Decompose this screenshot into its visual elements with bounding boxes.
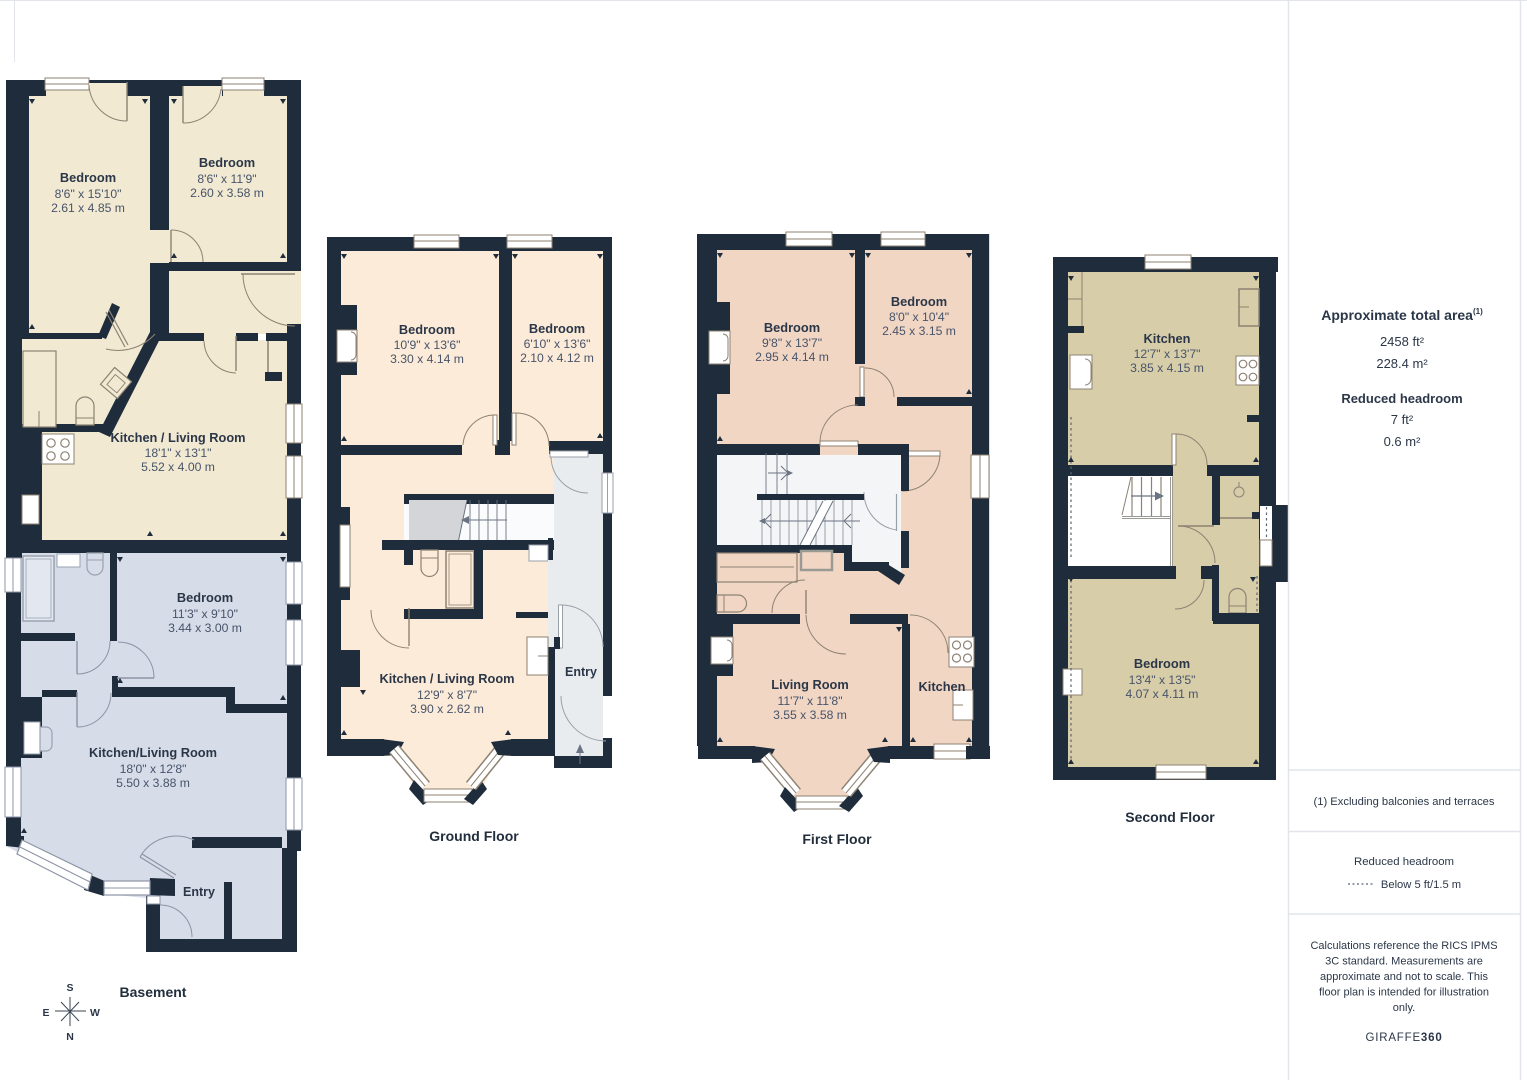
- svg-text:2.61 x 4.85 m: 2.61 x 4.85 m: [51, 201, 125, 215]
- svg-text:8'6" x 15'10": 8'6" x 15'10": [55, 187, 122, 201]
- svg-text:2.10 x 4.12 m: 2.10 x 4.12 m: [520, 351, 594, 365]
- svg-text:7 ft²: 7 ft²: [1391, 412, 1414, 427]
- svg-text:228.4 m²: 228.4 m²: [1376, 356, 1428, 371]
- svg-text:8'6" x 11'9": 8'6" x 11'9": [197, 172, 256, 186]
- svg-text:3.44 x 3.00 m: 3.44 x 3.00 m: [168, 621, 242, 635]
- svg-text:Second Floor: Second Floor: [1125, 809, 1215, 825]
- svg-text:Entry: Entry: [183, 885, 215, 899]
- svg-text:Basement: Basement: [120, 984, 187, 1000]
- svg-text:floor plan is intended for ill: floor plan is intended for illustration: [1319, 987, 1489, 999]
- svg-text:Bedroom: Bedroom: [1134, 656, 1190, 671]
- svg-text:11'3" x 9'10": 11'3" x 9'10": [172, 607, 238, 621]
- svg-text:Below 5 ft/1.5 m: Below 5 ft/1.5 m: [1381, 879, 1461, 891]
- svg-text:Approximate total area(1): Approximate total area(1): [1321, 307, 1483, 323]
- svg-text:Reduced headroom: Reduced headroom: [1354, 856, 1454, 868]
- svg-text:S: S: [66, 982, 73, 994]
- svg-text:Kitchen/Living Room: Kitchen/Living Room: [89, 745, 217, 760]
- svg-text:3.85 x 4.15 m: 3.85 x 4.15 m: [1130, 361, 1204, 375]
- svg-text:3.90 x 2.62 m: 3.90 x 2.62 m: [410, 702, 484, 716]
- svg-text:11'7" x 11'8": 11'7" x 11'8": [777, 694, 842, 708]
- svg-text:0.6 m²: 0.6 m²: [1384, 434, 1422, 449]
- svg-text:Bedroom: Bedroom: [399, 322, 455, 337]
- svg-text:2.95 x 4.14 m: 2.95 x 4.14 m: [755, 350, 829, 364]
- svg-text:3C standard. Measurements are: 3C standard. Measurements are: [1325, 956, 1483, 968]
- svg-text:6'10" x 13'6": 6'10" x 13'6": [524, 337, 591, 351]
- svg-text:E: E: [42, 1007, 49, 1019]
- svg-text:2.60 x 3.58 m: 2.60 x 3.58 m: [190, 186, 264, 200]
- svg-text:2458 ft²: 2458 ft²: [1380, 334, 1425, 349]
- svg-text:Bedroom: Bedroom: [177, 590, 233, 605]
- svg-text:3.55 x 3.58 m: 3.55 x 3.58 m: [773, 708, 847, 722]
- svg-text:Bedroom: Bedroom: [529, 321, 585, 336]
- svg-text:Entry: Entry: [565, 665, 597, 679]
- svg-text:Kitchen: Kitchen: [1144, 331, 1191, 346]
- svg-text:approximate and not to scale.: approximate and not to scale. This: [1320, 971, 1488, 983]
- svg-text:12'7" x 13'7": 12'7" x 13'7": [1134, 347, 1201, 361]
- svg-text:only.: only.: [1393, 1002, 1415, 1014]
- svg-text:GIRAFFE360: GIRAFFE360: [1365, 1032, 1442, 1044]
- svg-text:Bedroom: Bedroom: [199, 155, 255, 170]
- svg-text:5.52 x 4.00 m: 5.52 x 4.00 m: [141, 460, 215, 474]
- svg-text:Kitchen: Kitchen: [919, 679, 966, 694]
- svg-text:Bedroom: Bedroom: [60, 170, 116, 185]
- svg-text:18'1" x 13'1": 18'1" x 13'1": [145, 446, 212, 460]
- svg-text:3.30 x 4.14 m: 3.30 x 4.14 m: [390, 352, 464, 366]
- svg-text:4.07 x 4.11 m: 4.07 x 4.11 m: [1126, 687, 1199, 701]
- svg-text:8'0" x 10'4": 8'0" x 10'4": [889, 310, 949, 324]
- svg-text:N: N: [66, 1031, 74, 1043]
- svg-text:2.45 x 3.15 m: 2.45 x 3.15 m: [882, 324, 956, 338]
- svg-text:Living Room: Living Room: [771, 677, 849, 692]
- svg-text:18'0" x 12'8": 18'0" x 12'8": [120, 762, 187, 776]
- svg-text:First Floor: First Floor: [802, 831, 872, 847]
- svg-text:10'9" x 13'6": 10'9" x 13'6": [394, 338, 461, 352]
- svg-text:(1) Excluding balconies and te: (1) Excluding balconies and terraces: [1314, 796, 1495, 808]
- svg-text:W: W: [90, 1007, 100, 1019]
- svg-text:9'8" x 13'7": 9'8" x 13'7": [762, 336, 822, 350]
- svg-text:5.50 x 3.88 m: 5.50 x 3.88 m: [116, 776, 190, 790]
- svg-text:Calculations reference the RIC: Calculations reference the RICS IPMS: [1310, 940, 1497, 952]
- svg-text:12'9" x 8'7": 12'9" x 8'7": [417, 688, 477, 702]
- svg-text:Reduced headroom: Reduced headroom: [1341, 391, 1462, 406]
- svg-text:Bedroom: Bedroom: [891, 294, 947, 309]
- svg-text:13'4" x 13'5": 13'4" x 13'5": [1129, 673, 1196, 687]
- svg-text:Bedroom: Bedroom: [764, 320, 820, 335]
- svg-text:Kitchen / Living Room: Kitchen / Living Room: [379, 671, 514, 686]
- svg-text:Ground Floor: Ground Floor: [429, 828, 519, 844]
- svg-text:Kitchen / Living Room: Kitchen / Living Room: [110, 430, 245, 445]
